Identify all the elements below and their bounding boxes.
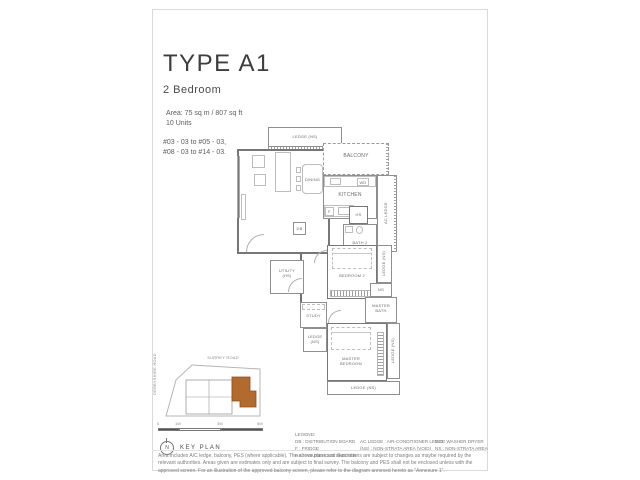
label-study: STUDY [300, 313, 327, 318]
label-balcony: BALCONY [323, 153, 389, 160]
label-master-bath: MASTER BATH [369, 303, 393, 313]
study-desk [302, 304, 325, 310]
label-kitchen: KITCHEN [323, 192, 377, 199]
kitchen-sink [330, 178, 341, 185]
scale-label-1m: 1M [175, 421, 181, 426]
armchair [252, 155, 265, 168]
keyplan-road-left: DERBYSHIRE ROAD [152, 351, 157, 395]
label-fridge: F [325, 209, 334, 214]
dining-chair [296, 185, 301, 191]
label-utility: UTILITY (HS) [274, 268, 300, 278]
label-ac-ledge: AC LEDGE [383, 185, 388, 242]
page-subtitle: 2 Bedroom [163, 84, 323, 96]
scale-segment [221, 428, 263, 431]
sofa [275, 152, 291, 192]
floorplan-sheet: TYPE A1 2 Bedroom Area: 75 sq m / 807 sq… [0, 0, 640, 480]
bath2-vanity [345, 226, 353, 233]
master-wardrobe [377, 332, 384, 376]
bedroom2-bed [332, 248, 372, 269]
legend-heading: LEGEND: [295, 432, 356, 439]
label-household-shelter: HS [349, 212, 368, 217]
label-bedroom2: BEDROOM 2 [337, 273, 367, 278]
area-text: Area: 75 sq m / 807 sq ft [166, 109, 323, 119]
legend: LEGEND: DB : DISTRIBUTION BOARD F : FRID… [295, 432, 480, 452]
keyplan: SURREY ROAD DERBYSHIRE ROAD 0 1M 3M 5M N… [158, 355, 268, 465]
legend-item-acledge: AC LEDGE : AIR-CONDITIONER LEDGE [360, 439, 445, 446]
label-db: DB [293, 226, 306, 231]
legend-item-wd: WD : WASHER DRYER [435, 439, 488, 446]
label-master-bedroom: MASTER BEDROOM [333, 356, 369, 366]
bath2-wc [356, 226, 363, 234]
master-bed [331, 327, 371, 350]
label-ledge-bedroom2: LEDGE (NS) [381, 247, 386, 281]
master-bed-pillow-line [331, 332, 371, 333]
disclaimer-divider [152, 450, 488, 451]
scale-bar: 0 1M 3M 5M [158, 421, 263, 433]
bedroom2-wardrobe [330, 290, 374, 297]
label-ledge-study: LEDGE (NS) [305, 334, 325, 344]
bedroom2-pillow-line [332, 253, 372, 254]
disclaimer-text: Area includes A/C ledge, balcony, PES (w… [158, 453, 482, 475]
dining-chair [296, 167, 301, 173]
scale-label-5m: 5M [257, 421, 263, 426]
tv-console [241, 194, 246, 220]
keyplan-map [160, 360, 264, 422]
scale-label-0: 0 [157, 421, 159, 426]
label-washer-dryer: WD [357, 180, 369, 185]
ac-ledge-hatch [394, 175, 397, 252]
label-ledge-top: LEDGE (NS) [268, 134, 342, 139]
dining-chair [296, 176, 301, 182]
label-ledge-bottom: LEDGE (NS) [327, 385, 400, 390]
label-ns: NS [370, 287, 392, 292]
legend-item-db: DB : DISTRIBUTION BOARD [295, 439, 356, 446]
scale-segment [179, 428, 221, 431]
label-dining: DINING [302, 177, 323, 182]
master-door-arc [328, 310, 341, 323]
scale-label-3m: 3M [217, 421, 223, 426]
scale-segment [158, 428, 179, 431]
label-ledge-master: LEDGE (NS) [390, 328, 395, 374]
coffee-table [254, 174, 266, 186]
page-title: TYPE A1 [163, 50, 323, 78]
living-window [237, 156, 240, 218]
keyplan-highlighted-unit [232, 377, 256, 407]
